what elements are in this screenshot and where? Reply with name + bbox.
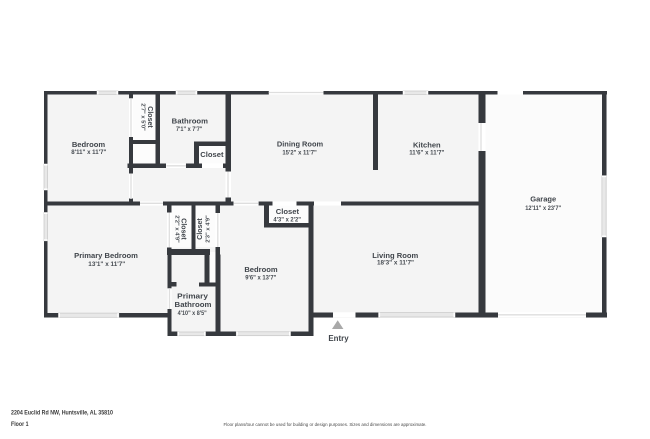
svg-text:8'11" x 11'7": 8'11" x 11'7"	[71, 149, 106, 156]
svg-text:13'1" x 11'7": 13'1" x 11'7"	[88, 261, 125, 268]
svg-text:Bathroom: Bathroom	[175, 300, 212, 309]
svg-text:Floor plans/tour cannot be use: Floor plans/tour cannot be used for buil…	[224, 422, 427, 428]
svg-text:Kitchen: Kitchen	[413, 140, 441, 149]
svg-text:Closet: Closet	[197, 218, 204, 240]
svg-text:Closet: Closet	[179, 218, 186, 240]
svg-text:12'11" x 23'7": 12'11" x 23'7"	[525, 205, 561, 212]
svg-text:2'3" x 4'9": 2'3" x 4'9"	[205, 215, 211, 243]
svg-text:Closet: Closet	[276, 207, 300, 216]
svg-text:4'3" x 2'2": 4'3" x 2'2"	[273, 217, 301, 224]
svg-text:Bathroom: Bathroom	[172, 117, 209, 126]
svg-text:9'6" x 13'7": 9'6" x 13'7"	[245, 275, 276, 282]
svg-text:2'2" x 4'9": 2'2" x 4'9"	[173, 215, 179, 243]
svg-text:Primary Bedroom: Primary Bedroom	[74, 251, 138, 260]
svg-text:Bedroom: Bedroom	[72, 140, 106, 149]
svg-text:7'1" x 7'7": 7'1" x 7'7"	[176, 126, 203, 133]
svg-text:Closet: Closet	[200, 150, 224, 159]
svg-text:11'6" x 11'7": 11'6" x 11'7"	[409, 149, 444, 156]
svg-text:2204 Euclid Rd NW, Huntsville,: 2204 Euclid Rd NW, Huntsville, AL 35810	[11, 410, 113, 417]
svg-text:15'2" x 11'7": 15'2" x 11'7"	[282, 149, 317, 156]
svg-text:Dining Room: Dining Room	[277, 139, 324, 148]
svg-text:2'7" x 5'0": 2'7" x 5'0"	[139, 103, 145, 131]
svg-text:Closet: Closet	[146, 106, 153, 128]
svg-text:18'3" x 11'7": 18'3" x 11'7"	[377, 260, 414, 267]
svg-text:Floor 1: Floor 1	[11, 421, 29, 428]
svg-text:Entry: Entry	[328, 334, 349, 343]
svg-text:Garage: Garage	[530, 194, 556, 203]
svg-text:Primary: Primary	[177, 291, 209, 300]
svg-text:4'10" x 8'5": 4'10" x 8'5"	[178, 310, 207, 317]
svg-text:Bedroom: Bedroom	[244, 265, 278, 274]
